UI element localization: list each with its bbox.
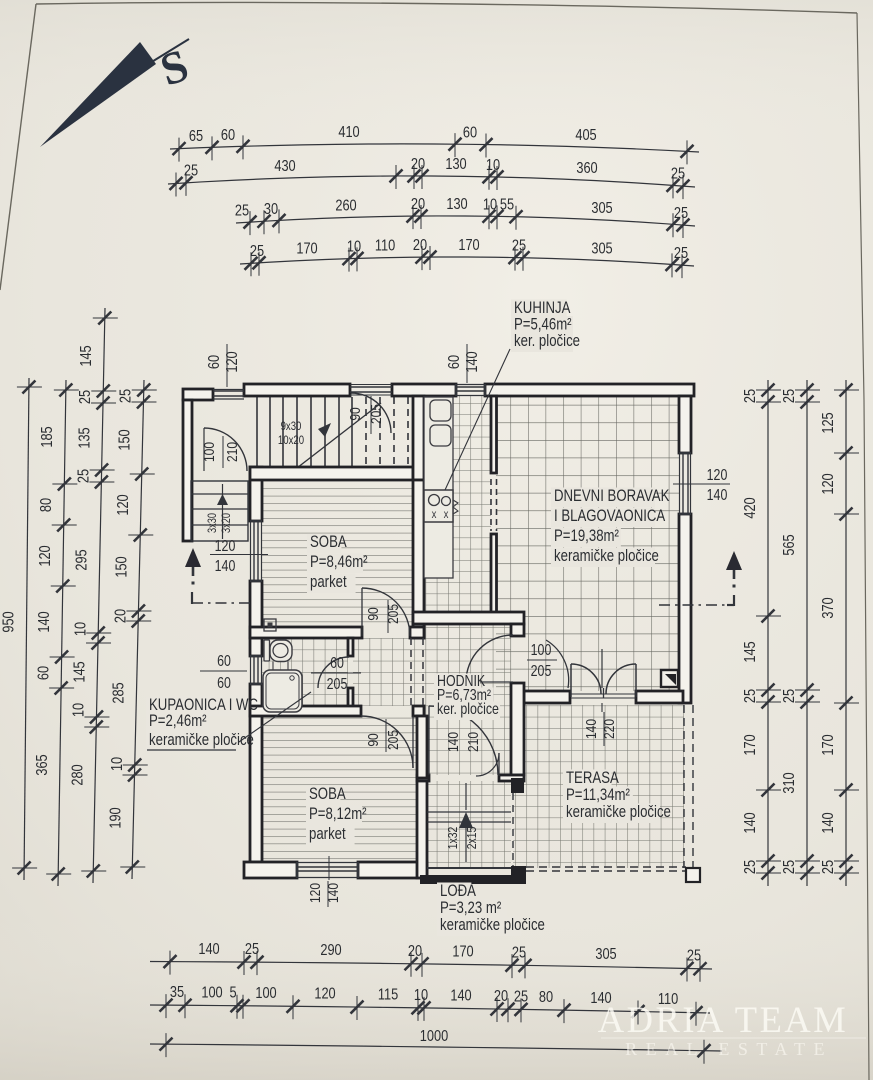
svg-text:140: 140 bbox=[198, 941, 219, 959]
svg-text:205: 205 bbox=[368, 404, 385, 424]
svg-text:25: 25 bbox=[77, 390, 95, 404]
svg-text:25: 25 bbox=[250, 243, 264, 261]
svg-text:190: 190 bbox=[107, 807, 125, 828]
svg-text:parket: parket bbox=[310, 573, 347, 592]
svg-text:410: 410 bbox=[338, 124, 359, 142]
svg-text:120: 120 bbox=[37, 545, 55, 566]
svg-text:140: 140 bbox=[36, 611, 54, 632]
svg-text:25: 25 bbox=[512, 237, 526, 255]
svg-text:65: 65 bbox=[189, 128, 203, 146]
svg-text:140: 140 bbox=[450, 987, 471, 1005]
svg-text:25: 25 bbox=[514, 988, 528, 1006]
svg-text:120: 120 bbox=[314, 985, 335, 1003]
svg-text:565: 565 bbox=[781, 534, 799, 555]
svg-text:25: 25 bbox=[671, 165, 685, 183]
svg-text:1x32: 1x32 bbox=[446, 827, 460, 850]
svg-text:25: 25 bbox=[674, 205, 688, 223]
svg-text:305: 305 bbox=[591, 240, 612, 258]
svg-text:25: 25 bbox=[742, 860, 760, 874]
svg-text:x: x bbox=[444, 508, 449, 521]
svg-text:140: 140 bbox=[215, 557, 236, 575]
svg-text:310: 310 bbox=[781, 772, 799, 793]
svg-text:25: 25 bbox=[820, 860, 838, 874]
svg-text:120: 120 bbox=[215, 537, 236, 555]
svg-text:420: 420 bbox=[742, 497, 760, 518]
svg-text:1000: 1000 bbox=[420, 1028, 448, 1046]
svg-text:20: 20 bbox=[411, 156, 425, 174]
svg-text:90: 90 bbox=[347, 407, 364, 421]
svg-text:25: 25 bbox=[781, 389, 799, 403]
svg-text:10: 10 bbox=[70, 703, 88, 717]
svg-text:10: 10 bbox=[483, 196, 497, 214]
svg-text:60: 60 bbox=[217, 674, 231, 692]
svg-text:100: 100 bbox=[201, 442, 218, 462]
svg-text:30: 30 bbox=[264, 201, 278, 219]
svg-text:135: 135 bbox=[76, 427, 94, 448]
svg-text:140: 140 bbox=[820, 812, 838, 833]
svg-text:10: 10 bbox=[486, 157, 500, 175]
svg-text:25: 25 bbox=[742, 389, 760, 403]
svg-text:170: 170 bbox=[458, 237, 479, 255]
svg-text:25: 25 bbox=[117, 389, 135, 403]
svg-text:10: 10 bbox=[72, 622, 90, 636]
svg-text:145: 145 bbox=[742, 641, 760, 662]
svg-text:10: 10 bbox=[109, 757, 127, 771]
svg-text:110: 110 bbox=[375, 237, 395, 255]
svg-text:10: 10 bbox=[414, 987, 428, 1005]
svg-text:145: 145 bbox=[78, 345, 96, 366]
svg-text:430: 430 bbox=[274, 158, 295, 176]
svg-text:keramičke pločice: keramičke pločice bbox=[554, 547, 659, 566]
svg-text:140: 140 bbox=[707, 486, 728, 504]
svg-text:25: 25 bbox=[781, 860, 799, 874]
svg-text:25: 25 bbox=[674, 245, 688, 263]
svg-text:2x15: 2x15 bbox=[465, 826, 479, 849]
svg-text:I BLAGOVAONICA: I BLAGOVAONICA bbox=[554, 507, 665, 526]
svg-text:parket: parket bbox=[309, 825, 346, 844]
svg-text:140: 140 bbox=[445, 732, 462, 752]
svg-text:150: 150 bbox=[116, 429, 134, 450]
svg-text:140: 140 bbox=[583, 719, 600, 739]
svg-text:25: 25 bbox=[687, 947, 701, 965]
svg-text:ker. pločice: ker. pločice bbox=[437, 700, 499, 718]
svg-text:140: 140 bbox=[325, 883, 342, 903]
svg-text:25: 25 bbox=[235, 202, 249, 220]
svg-text:140: 140 bbox=[742, 812, 760, 833]
svg-text:120: 120 bbox=[224, 351, 242, 372]
svg-text:25: 25 bbox=[781, 689, 799, 703]
svg-text:295: 295 bbox=[73, 549, 91, 570]
svg-text:25: 25 bbox=[245, 941, 259, 959]
svg-text:185: 185 bbox=[39, 426, 57, 447]
svg-text:80: 80 bbox=[539, 989, 553, 1007]
svg-text:305: 305 bbox=[595, 946, 616, 964]
svg-text:keramičke pločice: keramičke pločice bbox=[440, 916, 545, 935]
svg-text:3x20: 3x20 bbox=[221, 513, 233, 533]
svg-text:keramičke pločice: keramičke pločice bbox=[149, 731, 254, 750]
svg-text:145: 145 bbox=[71, 661, 89, 682]
svg-text:115: 115 bbox=[378, 986, 398, 1004]
svg-text:100: 100 bbox=[255, 985, 276, 1003]
svg-text:25: 25 bbox=[742, 689, 760, 703]
svg-text:120: 120 bbox=[115, 494, 133, 515]
svg-text:205: 205 bbox=[385, 604, 402, 624]
svg-text:ADRIA TEAM: ADRIA TEAM bbox=[598, 999, 848, 1040]
svg-text:60: 60 bbox=[217, 652, 231, 670]
svg-text:305: 305 bbox=[591, 200, 612, 218]
svg-text:120: 120 bbox=[307, 883, 324, 903]
svg-text:80: 80 bbox=[38, 498, 56, 512]
svg-text:5: 5 bbox=[229, 984, 236, 1002]
svg-text:60: 60 bbox=[206, 355, 224, 369]
svg-text:60: 60 bbox=[446, 355, 464, 369]
svg-text:SOBA: SOBA bbox=[309, 785, 346, 804]
svg-text:170: 170 bbox=[296, 240, 317, 258]
svg-text:20: 20 bbox=[112, 609, 130, 623]
svg-text:365: 365 bbox=[34, 754, 52, 775]
svg-text:x: x bbox=[432, 508, 437, 521]
svg-text:360: 360 bbox=[576, 160, 597, 178]
svg-text:170: 170 bbox=[452, 943, 473, 961]
svg-text:100: 100 bbox=[531, 641, 552, 659]
svg-text:205: 205 bbox=[531, 662, 552, 680]
svg-text:55: 55 bbox=[500, 196, 514, 214]
svg-text:20: 20 bbox=[411, 196, 425, 214]
svg-text:ker. pločice: ker. pločice bbox=[514, 332, 580, 351]
svg-text:9x30: 9x30 bbox=[281, 420, 302, 433]
svg-text:P=3,23 m²: P=3,23 m² bbox=[440, 899, 501, 918]
svg-text:TERASA: TERASA bbox=[566, 769, 619, 788]
svg-text:285: 285 bbox=[110, 682, 128, 703]
svg-text:DNEVNI BORAVAK: DNEVNI BORAVAK bbox=[554, 487, 669, 506]
svg-text:20: 20 bbox=[408, 943, 422, 961]
svg-text:205: 205 bbox=[327, 675, 348, 693]
svg-text:60: 60 bbox=[330, 654, 344, 672]
svg-text:60: 60 bbox=[221, 127, 235, 145]
svg-text:SOBA: SOBA bbox=[310, 533, 347, 552]
svg-text:405: 405 bbox=[575, 127, 596, 145]
svg-text:120: 120 bbox=[707, 466, 728, 484]
svg-text:25: 25 bbox=[512, 944, 526, 962]
svg-text:290: 290 bbox=[320, 942, 341, 960]
svg-text:35: 35 bbox=[170, 984, 184, 1002]
svg-text:210: 210 bbox=[465, 732, 482, 752]
svg-text:260: 260 bbox=[335, 197, 356, 215]
svg-text:P=8,12m²: P=8,12m² bbox=[309, 805, 367, 824]
svg-text:100: 100 bbox=[201, 984, 222, 1002]
svg-text:170: 170 bbox=[820, 734, 838, 755]
svg-text:60: 60 bbox=[463, 124, 477, 142]
svg-text:210: 210 bbox=[224, 442, 241, 462]
svg-text:90: 90 bbox=[365, 607, 382, 621]
svg-text:150: 150 bbox=[113, 556, 131, 577]
svg-text:90: 90 bbox=[365, 733, 382, 747]
svg-text:REAL ESTATE: REAL ESTATE bbox=[625, 1039, 833, 1059]
svg-text:170: 170 bbox=[742, 734, 760, 755]
svg-text:950: 950 bbox=[0, 611, 18, 632]
svg-text:20: 20 bbox=[413, 237, 427, 255]
svg-text:10x20: 10x20 bbox=[278, 434, 304, 447]
svg-text:keramičke pločice: keramičke pločice bbox=[566, 803, 671, 822]
svg-text:P=19,38m²: P=19,38m² bbox=[554, 527, 619, 546]
svg-text:60: 60 bbox=[35, 666, 53, 680]
svg-text:25: 25 bbox=[75, 469, 93, 483]
svg-text:120: 120 bbox=[820, 473, 838, 494]
svg-text:P=11,34m²: P=11,34m² bbox=[566, 786, 630, 805]
svg-text:205: 205 bbox=[385, 730, 402, 750]
svg-text:130: 130 bbox=[445, 156, 466, 174]
svg-text:140: 140 bbox=[464, 351, 482, 372]
svg-text:3x30: 3x30 bbox=[207, 513, 219, 533]
svg-text:125: 125 bbox=[820, 412, 838, 433]
svg-text:25: 25 bbox=[184, 162, 198, 180]
svg-text:P=8,46m²: P=8,46m² bbox=[310, 553, 368, 572]
svg-text:10: 10 bbox=[347, 238, 361, 256]
svg-text:370: 370 bbox=[820, 597, 838, 618]
svg-text:P=2,46m²: P=2,46m² bbox=[149, 712, 207, 731]
svg-text:20: 20 bbox=[494, 988, 508, 1006]
svg-text:220: 220 bbox=[601, 719, 618, 739]
svg-text:LOĐA: LOĐA bbox=[440, 882, 476, 901]
svg-text:130: 130 bbox=[446, 196, 467, 214]
svg-text:280: 280 bbox=[69, 764, 87, 785]
